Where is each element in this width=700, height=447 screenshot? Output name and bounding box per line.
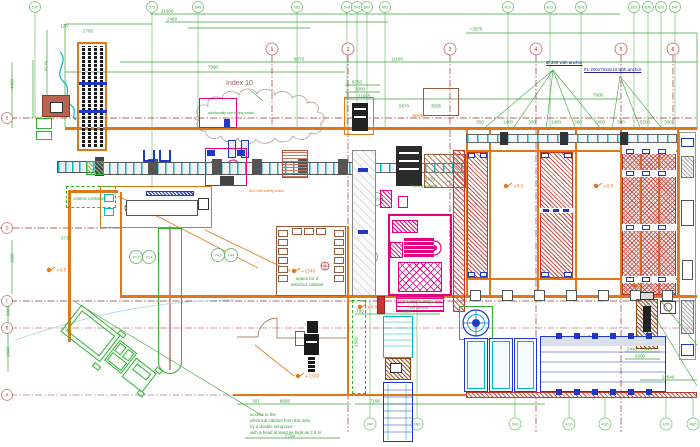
conveyor-unit <box>338 159 348 175</box>
dark-machine-slit <box>399 168 419 170</box>
cabinet <box>278 239 288 246</box>
tank-inner <box>492 341 510 389</box>
drive-note-2: all areas <box>410 306 428 311</box>
bay-post <box>489 130 491 296</box>
strip-box <box>682 260 693 280</box>
aisle-unit <box>500 132 508 145</box>
wall-bottom-right <box>466 392 697 398</box>
annex-box <box>36 118 52 129</box>
cabinet <box>292 228 302 235</box>
cabinet <box>278 275 288 282</box>
dim-label: 9750 <box>352 79 362 84</box>
press-arm <box>390 242 403 258</box>
column-box <box>566 290 577 301</box>
dim-label: 9670 <box>294 56 304 61</box>
pallet-box <box>642 225 650 230</box>
rack-blue-row <box>79 82 107 85</box>
optional-note: Heizung optional <box>410 185 437 189</box>
turntable-frame <box>459 306 493 340</box>
rack-box <box>480 153 487 158</box>
cabinet <box>334 275 344 282</box>
rack-frame <box>105 42 107 150</box>
dim-label: 2469 <box>167 16 177 21</box>
forklift-slit <box>306 341 317 343</box>
dim-label: 3000 <box>5 306 10 316</box>
post <box>592 333 598 339</box>
column-box <box>502 290 513 301</box>
dark-machine-slit <box>399 152 419 154</box>
post <box>628 389 634 395</box>
aisle-unit <box>560 132 568 145</box>
rack-blue-row <box>79 110 107 113</box>
forklift-mast <box>307 321 318 333</box>
press-aux <box>398 196 408 208</box>
rack-bar <box>82 46 85 148</box>
post <box>610 389 616 395</box>
cad-plant-layout-drawing: 5705755805855905956006056106156206256306… <box>0 0 700 447</box>
bay-post <box>575 130 577 296</box>
pallet-box <box>642 277 650 282</box>
drive-note-1: Drive through in <box>404 300 438 305</box>
splitter-label: Splitter <box>412 114 426 119</box>
post <box>556 333 562 339</box>
cabinet <box>278 266 288 273</box>
dim-label: 21200 <box>161 8 174 13</box>
cabinet <box>334 248 344 255</box>
press-feed-box <box>207 150 215 156</box>
index-label: Index 10 <box>226 80 253 88</box>
dim-label: 300 <box>528 119 536 124</box>
infeed-box <box>104 208 114 216</box>
cabinet <box>334 266 344 273</box>
strip-box <box>681 138 694 147</box>
dark-machine-slit <box>399 160 419 162</box>
infeed-roller <box>126 200 198 216</box>
index10-unit <box>224 119 230 127</box>
dim-label: 4170 <box>43 61 48 71</box>
infeed-beam <box>146 191 194 196</box>
brick-block <box>282 150 308 178</box>
upper-room <box>423 88 459 116</box>
dim-label: 301 <box>252 398 260 403</box>
dim-label: +3975 <box>470 26 483 31</box>
dim-label: 5200 <box>640 119 650 124</box>
post <box>592 389 598 395</box>
splitter-slit <box>354 108 366 110</box>
dim-label: 170 <box>60 23 68 28</box>
column-box <box>662 290 673 301</box>
cabinet <box>316 228 326 235</box>
dim-label: 3000 <box>355 86 365 91</box>
aisle-unit <box>620 132 628 145</box>
dim-label: 1640 <box>5 347 10 357</box>
dim-label: 7196 <box>370 398 380 403</box>
dim-label: 2765 <box>83 28 93 33</box>
dim-label: 3732 <box>61 235 71 240</box>
dim-label: 5430 <box>425 176 435 181</box>
wall-bottom-left <box>233 394 466 396</box>
pallet-box <box>626 225 634 230</box>
rack-dash <box>543 209 549 212</box>
column-box <box>534 290 545 301</box>
tank-inner <box>467 341 485 389</box>
dim-label: 1895 <box>353 337 358 347</box>
pallet-box <box>626 149 634 154</box>
splitter-slit <box>354 116 366 118</box>
elevator-mid-inner <box>390 363 402 373</box>
truck-wheel <box>136 389 145 397</box>
pallet-box <box>658 277 666 282</box>
wall-top <box>65 127 697 130</box>
dim-label: 1935 <box>9 253 14 263</box>
rack-box <box>468 153 475 158</box>
cloud-note: additionally one safety switch <box>208 112 255 116</box>
dim-label: 11190 <box>391 56 403 61</box>
pump-unit <box>660 301 676 314</box>
dim-label: 3505 <box>431 103 441 108</box>
storage-rack <box>467 152 488 278</box>
red-pipe <box>377 296 385 314</box>
dim-label: 5670 <box>399 103 409 108</box>
infeed-drive <box>198 198 209 210</box>
rack-box <box>480 272 487 277</box>
shaft-arrow <box>358 168 368 172</box>
annex-box <box>36 131 52 140</box>
pallet-box <box>658 171 666 176</box>
column-box <box>598 290 609 301</box>
dim-label: 1400 <box>503 119 513 124</box>
dim-label: 300 <box>617 119 625 124</box>
post <box>646 333 652 339</box>
cabinet <box>278 257 288 264</box>
press-feed-base <box>220 176 234 185</box>
cad-shapes-layer: 21200246917027657980967011190+3975975030… <box>0 0 700 447</box>
post <box>556 389 562 395</box>
press-lower <box>398 262 442 292</box>
space-note-2: electrics cabinet <box>291 283 323 288</box>
press-aux <box>380 190 392 208</box>
pallet-box <box>658 149 666 154</box>
forklift-body <box>304 334 319 355</box>
dim-label: 8650 <box>280 398 290 403</box>
hatched-wall <box>453 150 465 312</box>
strip-box <box>681 156 694 178</box>
storage-rack <box>540 152 573 278</box>
strip-box <box>681 300 694 334</box>
press-feed-box <box>237 150 245 156</box>
cabinet <box>334 230 344 237</box>
control-container-label: control container <box>73 197 106 202</box>
dim-label: 4400 <box>9 79 14 89</box>
shaft-arrow <box>358 230 368 234</box>
dim-label: 940 <box>644 346 652 351</box>
pit-machine <box>643 306 651 332</box>
tank-inner <box>517 341 534 389</box>
discharge-chute <box>158 228 182 374</box>
wall-center-vert <box>347 226 349 395</box>
cabinet <box>334 257 344 264</box>
planter-box <box>86 161 104 175</box>
forklift-fork <box>308 356 315 373</box>
dim-label: 2440 <box>627 346 637 351</box>
rack-bar <box>88 46 91 148</box>
pit-device <box>640 292 654 300</box>
dim-label: 21995 <box>358 93 371 98</box>
post <box>574 389 580 395</box>
dim-label: 12640 <box>662 374 675 379</box>
elevator-top <box>383 316 413 358</box>
pallet-box <box>642 149 650 154</box>
pallet-box <box>626 277 634 282</box>
rack-bar <box>100 46 103 148</box>
press-top <box>392 220 418 233</box>
u-machine <box>159 150 171 162</box>
rack-frame <box>77 42 79 150</box>
cabinet <box>278 248 288 255</box>
truck-wheel <box>92 362 101 371</box>
rack-bar <box>94 46 97 148</box>
strip-box <box>681 344 694 356</box>
cabinet <box>334 239 344 246</box>
u-machine <box>143 150 155 162</box>
elevator-bottom <box>383 382 413 442</box>
rack-box <box>468 272 475 277</box>
rack-dash <box>553 209 559 212</box>
rack-frame <box>77 42 107 44</box>
dim-label: 7900 <box>593 92 603 97</box>
rack-dash <box>563 209 569 212</box>
anchor-note-1: Ø 300 with anchor <box>546 61 583 66</box>
bay-post <box>537 130 539 296</box>
cabinet <box>278 230 288 237</box>
press-center <box>404 238 434 258</box>
pallet-box <box>658 225 666 230</box>
post <box>628 333 634 339</box>
anchor-note-2: FL 200x75x8x10 with anchor <box>584 68 641 73</box>
bed-note: Bed with safety switch <box>249 190 284 194</box>
pallet-box <box>642 171 650 176</box>
dim-label: 7980 <box>208 64 218 69</box>
pallet-box <box>626 171 634 176</box>
strip-box <box>681 200 694 226</box>
cabinet <box>304 228 314 235</box>
aisle-conveyor <box>466 134 677 143</box>
dim-label: 2600 <box>635 353 645 358</box>
brown-cabinet-inner <box>50 102 63 113</box>
dim-label: 300 <box>664 119 672 124</box>
post <box>646 389 652 395</box>
dim-label: 300 <box>574 119 582 124</box>
dim-label: 350 <box>476 119 484 124</box>
rack-frame <box>77 149 107 151</box>
rack-box <box>541 153 549 158</box>
dim-label: 1400 <box>595 119 605 124</box>
rack-box <box>564 272 572 277</box>
post <box>574 333 580 339</box>
rack-box <box>564 153 572 158</box>
column-box <box>470 290 481 301</box>
conveyor-unit <box>252 159 262 175</box>
dim-label: 1400 <box>551 119 561 124</box>
dim-label: 795 <box>356 308 364 313</box>
post <box>610 333 616 339</box>
rack-box <box>541 272 549 277</box>
access-note-4: with a head at least as high as 2.5 m <box>250 431 321 436</box>
